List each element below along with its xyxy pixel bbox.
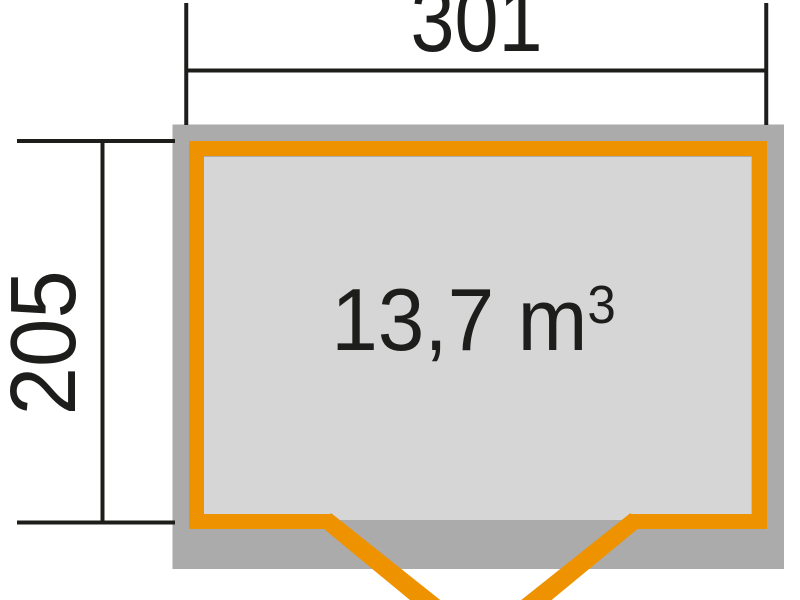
svg-text:205: 205 xyxy=(0,270,96,415)
svg-text:301: 301 xyxy=(410,0,542,71)
svg-text:13,7 m3: 13,7 m3 xyxy=(331,271,616,370)
